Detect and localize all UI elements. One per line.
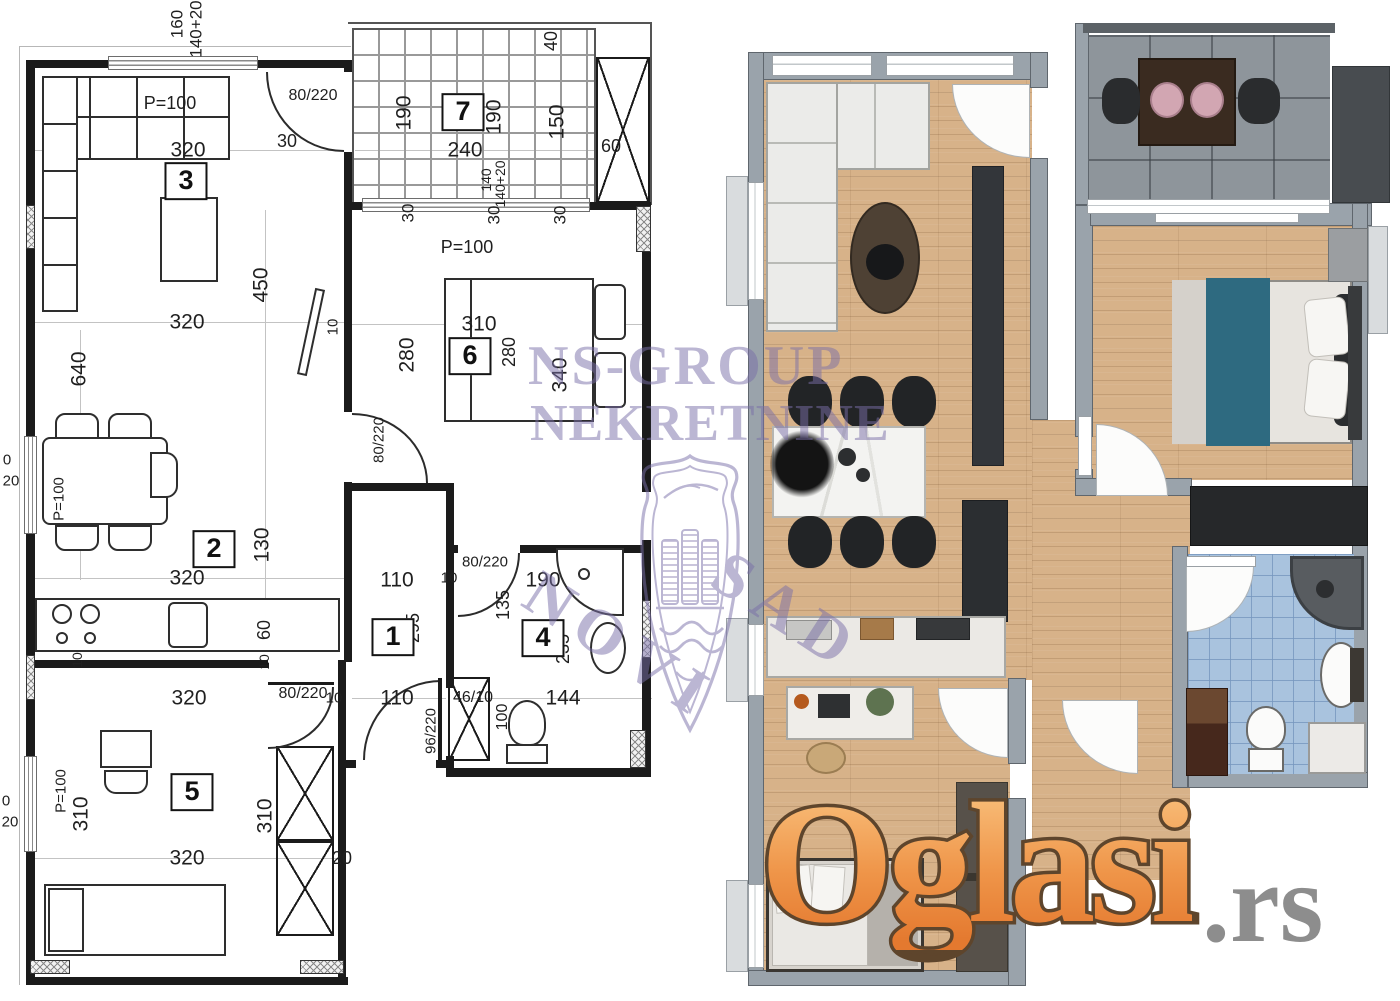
dim-label: 190 [525,570,560,591]
dim-label: 0 [3,453,11,468]
dim-label: 60 [255,620,273,640]
pillow [1303,358,1351,420]
dim-label: 320 [170,140,205,161]
dim-label: P=100 [54,769,69,813]
dim-label: 10 [257,654,271,670]
bed-runner [1206,278,1270,446]
dim-label: 20 [332,849,352,867]
terrace-chair-dark [1238,78,1280,124]
dim-label: 140+20 [493,160,507,207]
terrace-chair-dark [1102,78,1140,124]
dim-label: 144 [545,688,580,709]
cutting-board [860,618,894,640]
dim-label: 30 [486,206,503,225]
dim-label: P=100 [52,477,67,521]
dim-label: 640 [69,351,90,386]
stove [916,618,970,640]
desk-lamp [794,694,809,709]
dim-label: 20 [3,474,20,489]
laptop [818,694,850,718]
dim-label: 0 [2,794,10,809]
plan-annotations: 160140+20P=10032080/22030190190240401506… [0,0,700,1001]
duvet-fold [1172,280,1210,444]
dim-label: 320 [171,688,206,709]
pillow [772,864,815,914]
room-number-label: 4 [521,619,564,657]
dim-label: 80/220 [289,88,338,104]
office-wardrobe [956,782,1008,972]
dim-label: 280 [397,337,418,372]
dim-label: 320 [169,312,204,333]
room-number-label: 5 [170,773,213,811]
wall [748,970,1024,986]
wall [1075,205,1093,437]
tv-cabinet [972,166,1004,466]
dim-label: 160 [169,10,186,38]
terrace-top-wall [1083,23,1335,33]
dim-label: P=100 [144,94,197,112]
toilet-tank [1248,748,1284,772]
dim-label: 450 [251,267,272,302]
terrace-chair-pink [1190,82,1224,118]
dim-label: 10 [441,571,458,586]
door-leaf [1186,556,1256,567]
window-sill [726,176,748,306]
blanket [868,864,918,966]
dining-chair [840,376,884,428]
dim-label: P=100 [441,238,494,256]
pillow [810,865,845,913]
dining-chair [788,376,832,428]
door-leaf [1078,416,1092,476]
washing-machine [1308,722,1366,774]
wall [1008,798,1026,986]
wall [1030,52,1048,88]
room-number-label: 1 [371,618,414,656]
sofa [766,82,838,332]
kitchen-sink [786,620,832,640]
wall [1075,23,1089,205]
dim-label: 30 [552,206,569,225]
dim-label: 30 [277,132,297,150]
room-number-label: 7 [441,93,484,131]
centerpiece-plant [770,430,834,498]
dim-label: 100 [495,704,511,731]
bathroom-cabinet [1186,688,1228,776]
window [748,884,764,968]
pillow [1303,296,1351,358]
dim-label: 110 [380,688,413,709]
dim-label: 40 [542,31,560,51]
dim-label: 46/10 [453,690,493,706]
dim-label: 135 [494,590,512,620]
dim-label: 10 [70,652,84,668]
fridge-unit [962,500,1008,622]
dim-label: 80/220 [279,686,328,702]
window [1087,199,1330,214]
room-number-label: 3 [164,162,207,200]
desk-plant [866,688,894,716]
nightstand [1328,228,1368,282]
headboard [1348,286,1362,440]
dim-label: 190 [394,95,415,130]
technical-floor-plan: 160140+20P=10032080/22030190190240401506… [0,0,700,1001]
wall [1008,678,1026,764]
bedroom-wardrobe [1190,486,1368,546]
dim-label: 130 [252,527,273,562]
terrace-cabinet [1332,66,1390,203]
window-sill [726,880,748,972]
bowl [856,468,870,482]
dim-label: 320 [169,568,204,589]
dim-label: 320 [169,848,204,869]
dim-label: 190 [484,99,505,134]
table-decor [866,244,904,280]
wall [1030,158,1048,420]
bowl [838,448,856,466]
terrace-chair-pink [1150,82,1184,118]
dim-label: 60 [601,137,621,155]
room-number-label: 2 [192,530,235,568]
window [772,55,872,76]
dim-label: 80/220 [372,417,387,463]
dim-label: 140 [479,168,493,191]
dim-label: 310 [71,796,92,831]
dim-label: 10 [326,691,343,706]
dining-chair [892,376,936,428]
dining-chair [840,516,884,568]
dim-label: 340 [550,357,571,392]
dim-label: 20 [2,815,19,830]
dining-chair [788,516,832,568]
dim-label: 310 [255,798,276,833]
sink-cabinet [1350,648,1364,702]
window [886,55,1014,76]
window [748,624,764,696]
dim-label: 96/220 [424,708,439,754]
window [748,182,764,300]
dim-label: 150 [547,104,568,139]
dim-label: 310 [461,314,496,335]
dim-label: 110 [380,570,413,591]
toilet [1246,706,1286,750]
dining-chair [892,516,936,568]
dim-label: 30 [400,204,417,223]
dim-label: 280 [500,337,518,367]
dim-label: 140+20 [188,0,205,57]
window-sill [726,618,748,702]
shower-drain [1316,580,1334,598]
dim-label: 10 [326,319,341,336]
real-estate-floor-plan-image: 160140+20P=10032080/22030190190240401506… [0,0,1400,1001]
room-number-label: 6 [448,337,491,375]
window-sill [1368,226,1388,334]
dim-label: 80/220 [462,555,508,570]
dim-label: 240 [447,140,482,161]
desk-chair [806,742,846,774]
